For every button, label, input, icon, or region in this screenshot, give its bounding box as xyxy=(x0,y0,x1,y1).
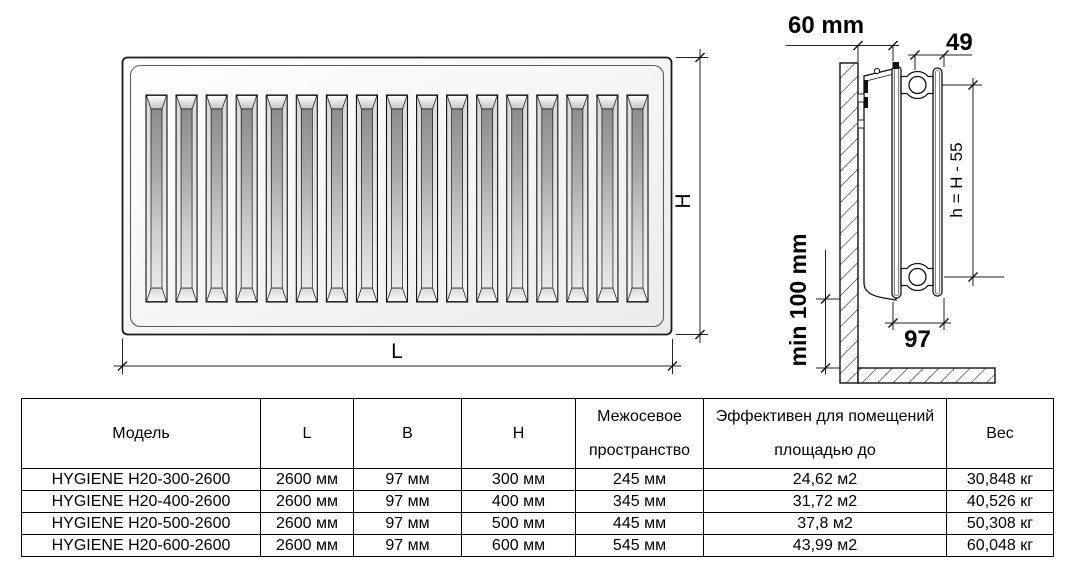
table-row: HYGIENE H20-600-26002600 мм97 мм600 мм54… xyxy=(22,535,1054,557)
table-cell: HYGIENE H20-500-2600 xyxy=(22,513,261,535)
dimension-label-floor-clearance: min 100 mm xyxy=(785,234,811,367)
spec-table: МодельLBHМежосевое пространствоЭффективе… xyxy=(21,398,1054,557)
table-cell: 445 мм xyxy=(576,513,704,535)
table-cell: 97 мм xyxy=(354,469,462,491)
radiator-slot xyxy=(176,95,197,302)
dimension-label-depth: 97 xyxy=(904,326,931,353)
wall-section xyxy=(840,63,858,383)
table-cell: HYGIENE H20-400-2600 xyxy=(22,491,261,513)
wall-bracket-tab xyxy=(858,94,864,102)
dimension-label-connection-offset: 49 xyxy=(946,29,973,56)
radiator-slot xyxy=(356,95,377,302)
table-cell: 500 мм xyxy=(462,513,576,535)
top-connection-port xyxy=(909,77,926,94)
radiator-slot xyxy=(146,95,167,302)
wall-bracket-hook xyxy=(864,80,868,93)
radiator-slot xyxy=(206,95,227,302)
wall-bracket-hook xyxy=(864,97,868,108)
table-cell: HYGIENE H20-300-2600 xyxy=(22,469,261,491)
radiator-technical-diagram: H L xyxy=(0,0,1081,396)
table-cell: 2600 мм xyxy=(261,535,354,557)
radiator-slot xyxy=(236,95,257,302)
radiator-spec-sheet: { "diagram": { "front_view": { "slot_cou… xyxy=(0,0,1081,569)
column-header-7: Вес xyxy=(947,399,1054,469)
column-header-6: Эффективен для помещений площадью до xyxy=(704,399,947,469)
table-cell: 2600 мм xyxy=(261,491,354,513)
column-header-1: Модель xyxy=(22,399,261,469)
radiator-slot xyxy=(387,95,408,302)
wall-bracket-tab xyxy=(858,120,864,128)
column-header-5: Межосевое пространство xyxy=(576,399,704,469)
table-cell: 60,048 кг xyxy=(947,535,1054,557)
table-cell: 24,62 м2 xyxy=(704,469,947,491)
radiator-slot xyxy=(567,95,588,302)
radiator-slot xyxy=(477,95,498,302)
table-cell: 345 мм xyxy=(576,491,704,513)
table-cell: 43,99 м2 xyxy=(704,535,947,557)
table-cell: 2600 мм xyxy=(261,513,354,535)
column-header-2: L xyxy=(261,399,354,469)
radiator-slot xyxy=(296,95,317,302)
radiator-slot xyxy=(447,95,468,302)
column-header-3: B xyxy=(354,399,462,469)
radiator-slot xyxy=(417,95,438,302)
table-cell: 300 мм xyxy=(462,469,576,491)
table-cell: 40,526 кг xyxy=(947,491,1054,513)
front-tube xyxy=(933,68,942,296)
radiator-slot xyxy=(266,95,287,302)
table-cell: 37,8 м2 xyxy=(704,513,947,535)
radiator-slots xyxy=(146,95,648,302)
table-cell: 97 мм xyxy=(354,535,462,557)
table-cell: 600 мм xyxy=(462,535,576,557)
air-vent-knob xyxy=(874,68,879,73)
table-row: HYGIENE H20-400-26002600 мм97 мм400 мм34… xyxy=(22,491,1054,513)
table-cell: 545 мм xyxy=(576,535,704,557)
table-cell: 50,308 кг xyxy=(947,513,1054,535)
table-cell: 31,72 м2 xyxy=(704,491,947,513)
dimension-label-wall-distance: 60 mm xyxy=(788,12,864,39)
table-row: HYGIENE H20-500-26002600 мм97 мм500 мм44… xyxy=(22,513,1054,535)
dimension-label-height: H xyxy=(672,193,695,208)
spec-table-container: МодельLBHМежосевое пространствоЭффективе… xyxy=(21,398,1053,557)
table-cell: 30,848 кг xyxy=(947,469,1054,491)
header-row: МодельLBHМежосевое пространствоЭффективе… xyxy=(22,399,1054,469)
table-row: HYGIENE H20-300-26002600 мм97 мм300 мм24… xyxy=(22,469,1054,491)
radiator-slot xyxy=(507,95,528,302)
table-cell: HYGIENE H20-600-2600 xyxy=(22,535,261,557)
table-cell: 97 мм xyxy=(354,491,462,513)
dimension-label-length: L xyxy=(391,340,403,363)
floor-section xyxy=(858,368,995,383)
table-cell: 2600 мм xyxy=(261,469,354,491)
dimension-label-axis-height: h = H - 55 xyxy=(947,142,966,217)
radiator-slot xyxy=(597,95,618,302)
bottom-connection-port xyxy=(909,269,926,286)
spec-table-header: МодельLBHМежосевое пространствоЭффективе… xyxy=(22,399,1054,469)
table-cell: 245 мм xyxy=(576,469,704,491)
radiator-slot xyxy=(326,95,347,302)
table-cell: 97 мм xyxy=(354,513,462,535)
back-tube xyxy=(892,66,901,298)
column-header-4: H xyxy=(462,399,576,469)
radiator-front-view xyxy=(123,58,672,335)
table-cell: 400 мм xyxy=(462,491,576,513)
radiator-slot xyxy=(627,95,648,302)
radiator-slot xyxy=(537,95,558,302)
top-clamp xyxy=(893,62,900,69)
spec-table-body: HYGIENE H20-300-26002600 мм97 мм300 мм24… xyxy=(22,469,1054,557)
